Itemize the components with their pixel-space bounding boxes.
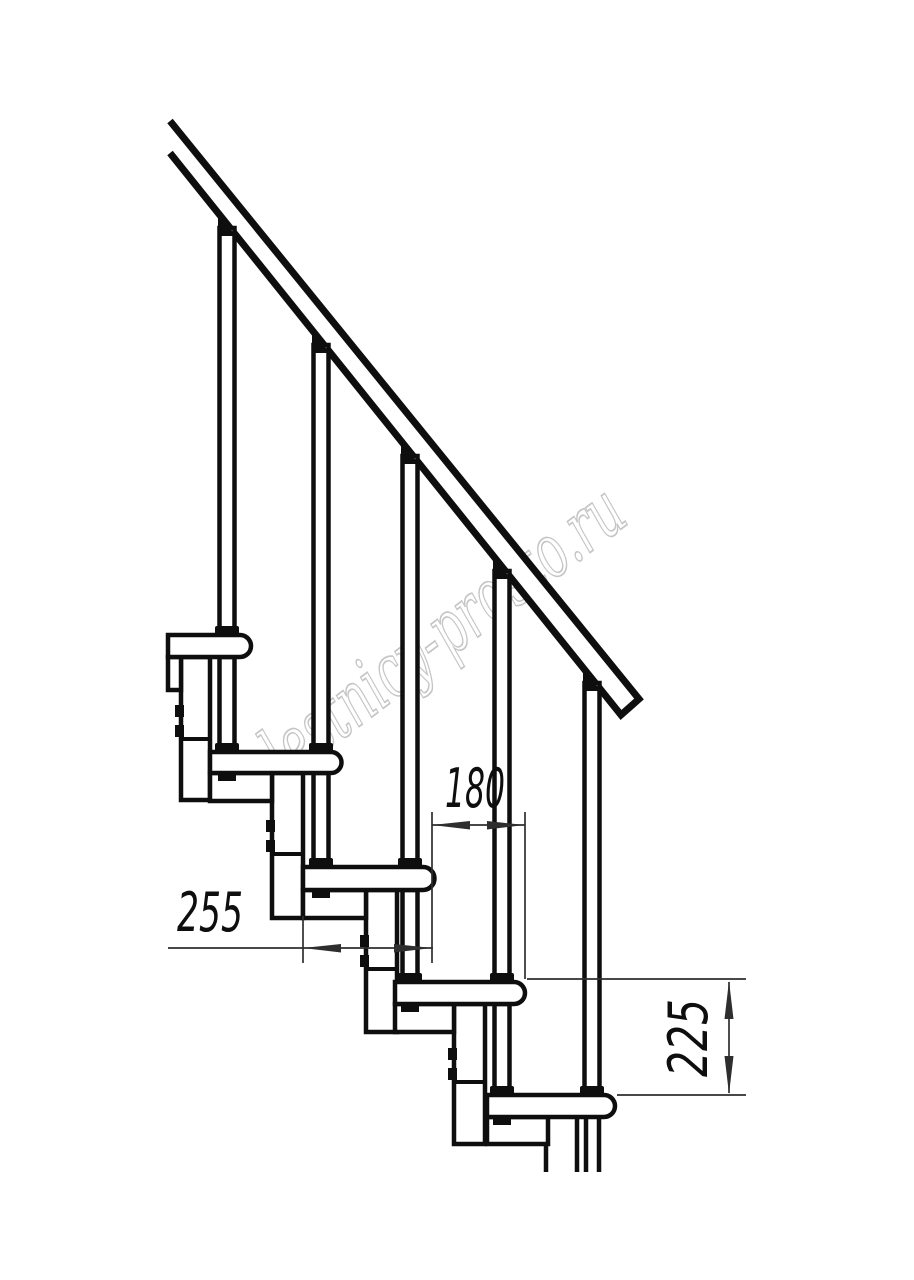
spine-column: [181, 657, 210, 800]
clamp-bolt: [360, 955, 369, 967]
tread-2: [210, 752, 342, 773]
rod-segment: [403, 890, 418, 982]
rod-foot: [490, 973, 514, 982]
clamp-bolt: [175, 725, 184, 737]
rod-nut: [218, 774, 236, 781]
dimension-label-tread-depth: 255: [177, 881, 243, 944]
rod-segment: [314, 773, 329, 867]
spine-column: [366, 890, 397, 1032]
rod-nut: [493, 1118, 511, 1125]
clamp-bolt: [266, 820, 275, 832]
spine-column: [272, 773, 303, 918]
rod-foot: [215, 626, 239, 635]
rod-foot: [309, 743, 333, 752]
baluster-rod: [585, 683, 600, 1095]
tread-5: [487, 1095, 615, 1117]
rod-foot: [398, 973, 422, 982]
clamp-bolt: [448, 1068, 457, 1080]
rod-nut: [401, 1005, 419, 1012]
tread-4: [395, 982, 525, 1004]
baluster-rod: [220, 228, 235, 635]
clamp-bolt: [266, 840, 275, 852]
rod-nut: [312, 891, 330, 898]
dimension-label-step-run: 180: [445, 757, 505, 820]
drawing-page: lestnicy-prosto.ru: [0, 0, 914, 1280]
rod-foot: [215, 743, 239, 752]
bracket: [168, 657, 181, 690]
tread-1: [168, 635, 251, 657]
rod-foot: [580, 1086, 604, 1095]
rod-segment: [220, 657, 235, 752]
rod-foot: [490, 1086, 514, 1095]
clamp-bolt: [448, 1048, 457, 1060]
spine-column: [454, 1004, 485, 1144]
staircase-side-view-drawing: lestnicy-prosto.ru: [0, 0, 914, 1280]
rod-foot: [398, 858, 422, 867]
rod-segment: [495, 1004, 510, 1095]
dimension-label-step-rise: 225: [657, 999, 720, 1077]
baluster-rod: [403, 456, 418, 867]
clamp-bolt: [175, 705, 184, 717]
rod-foot: [309, 858, 333, 867]
baluster-rod: [314, 345, 329, 752]
clamp-bolt: [360, 935, 369, 947]
tread-3: [303, 867, 435, 890]
